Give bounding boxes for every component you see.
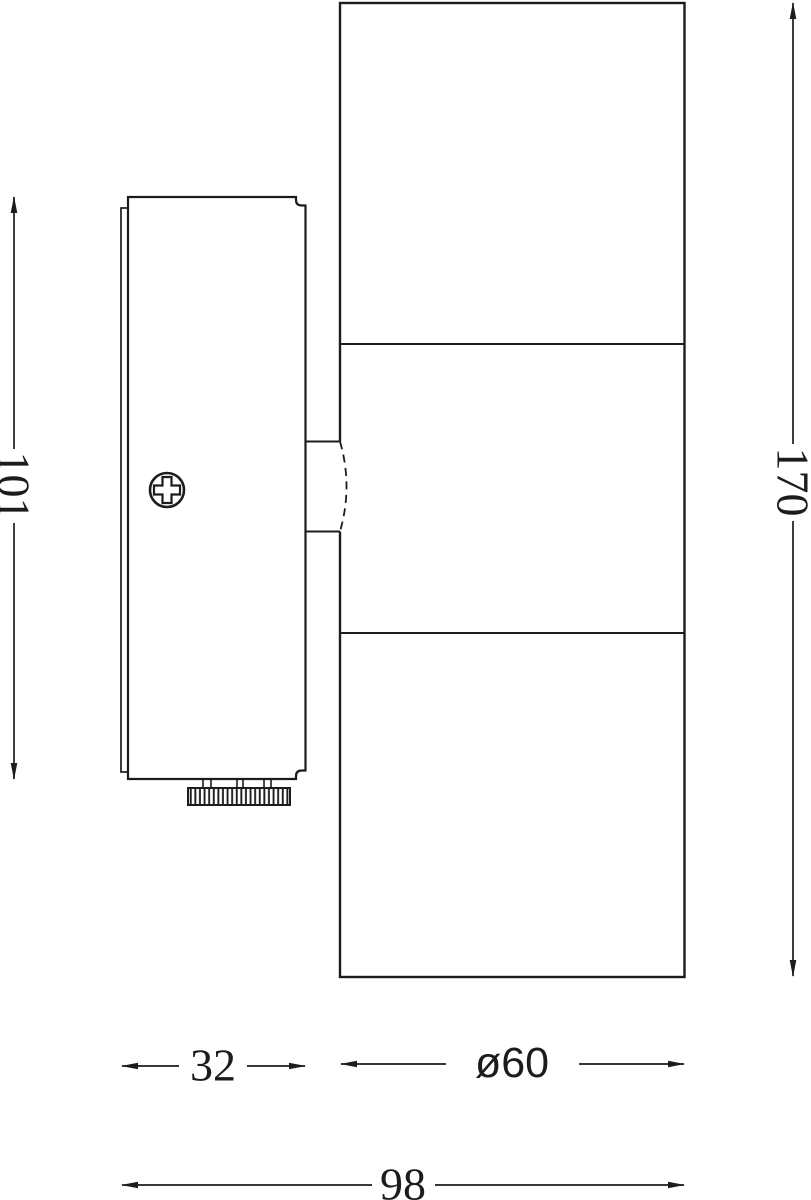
dimension-label-plate-height: 101: [0, 452, 40, 521]
dimension-overall-depth: 98: [121, 1159, 685, 1200]
lamp-body: [340, 3, 685, 977]
arrow-down-icon: [11, 763, 18, 780]
wall-plate: [121, 197, 306, 805]
phillips-screw-icon: [150, 473, 184, 507]
swivel-joint-bracket: [306, 442, 341, 532]
technical-drawing-sheet: 101 170 32 ø60: [0, 0, 811, 1200]
dimension-label-body-diameter: ø60: [475, 1039, 549, 1087]
dimension-body-diameter: ø60: [340, 1039, 685, 1087]
dimension-label-overall-height: 170: [768, 448, 811, 517]
arrow-right-icon: [668, 1182, 685, 1189]
dimension-label-overall-depth: 98: [380, 1159, 426, 1200]
dimension-overall-height: 170: [768, 2, 811, 977]
arrow-up-icon: [790, 2, 797, 19]
dimension-plate-depth: 32: [121, 1040, 306, 1091]
dimension-label-plate-depth: 32: [190, 1040, 236, 1091]
arrow-left-icon: [121, 1063, 138, 1070]
arrow-up-icon: [11, 196, 18, 213]
joint-edge-mask: [338, 442, 343, 532]
arrow-right-icon: [289, 1063, 306, 1070]
arrow-down-icon: [790, 960, 797, 977]
knurled-adjustment-knob: [188, 780, 290, 805]
arrow-right-icon: [668, 1061, 685, 1068]
arrow-left-icon: [340, 1061, 357, 1068]
wall-spotlight-side-view-drawing: 101 170 32 ø60: [0, 0, 811, 1200]
dimension-plate-height: 101: [0, 196, 40, 780]
lamp-body-outline: [340, 3, 685, 977]
arrow-left-icon: [121, 1182, 138, 1189]
